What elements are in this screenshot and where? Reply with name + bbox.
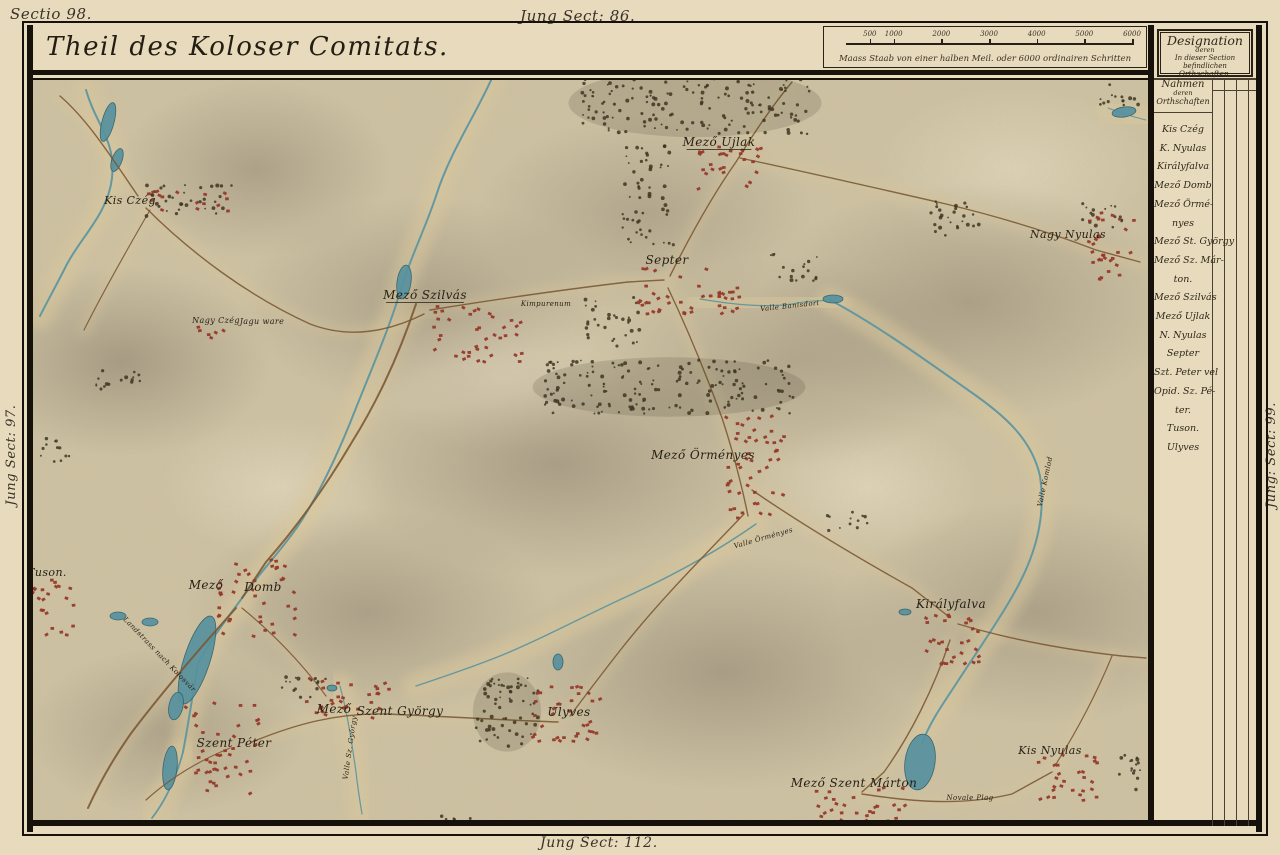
scale-tick — [1132, 39, 1134, 45]
legend-entry: ter. — [1154, 402, 1212, 421]
margin-adjoining-west: Jung Sect: 97. — [4, 385, 20, 525]
margin-adjoining-south: Jung Sect: 112. — [540, 835, 658, 851]
table-col-line — [1212, 78, 1213, 826]
map-label-kir-lyfalva: Királyfalva — [915, 597, 986, 611]
map-label-mez-rm-nyes: Mező Örményes — [650, 446, 755, 462]
map-label-mez-ujlak: Mező Ujlak — [682, 135, 756, 149]
scale-tick-label: 1000 — [885, 30, 903, 38]
table-col-line — [1236, 78, 1237, 826]
map-label-mez-szilv-s: Mező Szilvás — [382, 288, 467, 302]
scale-tick — [870, 39, 872, 45]
map-label-jagu-ware: Jagu ware — [238, 317, 285, 326]
legend-entry: Mező Sz. Már- — [1154, 252, 1212, 271]
legend-entry: Mező Szilvás — [1154, 289, 1212, 308]
map-label-kimpurenum: Kimpurenum — [520, 300, 571, 308]
scale-line: 500100020003000400050006000 — [846, 43, 1132, 45]
map-label-domb: Domb — [243, 580, 282, 594]
legend-entry: N. Nyulas — [1154, 327, 1212, 346]
header-divider-band — [27, 70, 1154, 75]
scale-tick — [894, 39, 896, 45]
legend-entry: Septer — [1154, 345, 1212, 364]
map-label-szent-gy-rgy: Szent György — [357, 704, 444, 718]
map-label-ulyves: Ulyves — [547, 705, 590, 719]
legend-entry: Mező Domb — [1154, 177, 1212, 196]
frame-right-inner-band — [1256, 25, 1262, 832]
map-label-septer: Septer — [645, 253, 689, 267]
map-label-novale-plag: Novale Plag — [945, 794, 993, 802]
scale-tick-label: 3000 — [980, 30, 998, 38]
table-col-line — [1248, 78, 1249, 826]
designation-text: Designation deren In dieser Section befi… — [1160, 32, 1250, 74]
table-subheader-line — [1212, 90, 1256, 91]
map-canvas: Kis CzégNagy CzégJagu wareMező SzilvásKi… — [33, 80, 1148, 820]
map-label-nagy-cz-g: Nagy Czég — [191, 316, 240, 325]
designation-line3: In dieser Section befindlichen — [1161, 54, 1249, 70]
frame-left-outer-line — [22, 21, 24, 836]
scale-tick — [1037, 39, 1039, 45]
designation-box: Designation deren In dieser Section befi… — [1157, 29, 1253, 77]
map-drawing: Kis CzégNagy CzégJagu wareMező SzilvásKi… — [33, 80, 1148, 820]
legend-entry: Mező Örmé- — [1154, 196, 1212, 215]
frame-bottom-inner-band — [27, 820, 1262, 826]
map-sheet: Sectio 98. Jung Sect: 86. Jung Sect: 112… — [0, 0, 1280, 855]
map-label-kis-cz-g: Kis Czég — [103, 194, 156, 207]
names-column-header: Nahmen deren Orthschaften — [1154, 79, 1212, 106]
map-title: Theil des Koloser Comitats. — [46, 32, 449, 62]
legend-entry: Szt. Peter vel — [1154, 364, 1212, 383]
map-label-szent-p-ter: Szent Péter — [197, 736, 273, 750]
scale-caption: Maass Staab von einer halben Meil. oder … — [824, 54, 1146, 64]
scale-tick-label: 4000 — [1028, 30, 1046, 38]
scale-tick — [989, 39, 991, 45]
legend-entry: Mező St. György — [1154, 233, 1212, 252]
designation-line4: Orthschaften. — [1161, 70, 1249, 78]
table-col-line — [1224, 78, 1225, 826]
legend-entry: Tuson. — [1154, 420, 1212, 439]
frame-right-outer-line — [1266, 21, 1268, 836]
names-header-line3: Orthschaften — [1154, 97, 1212, 106]
legend-entry: Kis Czég — [1154, 121, 1212, 140]
scale-tick-label: 5000 — [1075, 30, 1093, 38]
names-header-underline — [1154, 112, 1212, 113]
place-name-list: Kis CzégK. NyulasKirályfalvaMező DombMez… — [1154, 121, 1212, 458]
map-label-mez-: Mező — [316, 702, 352, 716]
frame-top-line — [22, 21, 1268, 23]
scale-bar: 500100020003000400050006000 Maass Staab … — [823, 26, 1147, 68]
names-header-line2: deren — [1154, 90, 1212, 97]
legend-entry: nyes — [1154, 215, 1212, 234]
frame-bottom-outer-line — [22, 834, 1268, 836]
legend-entry: Ulyves — [1154, 439, 1212, 458]
scale-tick — [1084, 39, 1086, 45]
legend-entry: Mező Ujlak — [1154, 308, 1212, 327]
legend-entry: ton. — [1154, 271, 1212, 290]
map-label-mez-szent-m-rton: Mező Szent Márton — [790, 776, 918, 790]
map-label-nagy-nyulas: Nagy Nyulas — [1029, 228, 1106, 241]
scale-tick — [941, 39, 943, 45]
legend-entry: Opid. Sz. Pé- — [1154, 383, 1212, 402]
scale-tick-label: 500 — [863, 30, 876, 38]
scale-tick-label: 2000 — [932, 30, 950, 38]
map-label-tuson-: Tuson. — [33, 566, 67, 579]
legend-entry: K. Nyulas — [1154, 140, 1212, 159]
legend-entry: Királyfalva — [1154, 158, 1212, 177]
scale-tick-label: 6000 — [1123, 30, 1141, 38]
legend-sidebar: Designation deren In dieser Section befi… — [1154, 25, 1256, 826]
designation-line2: deren — [1161, 47, 1249, 54]
map-label-kis-nyulas: Kis Nyulas — [1017, 744, 1082, 757]
map-label-mez-: Mező — [188, 578, 224, 592]
